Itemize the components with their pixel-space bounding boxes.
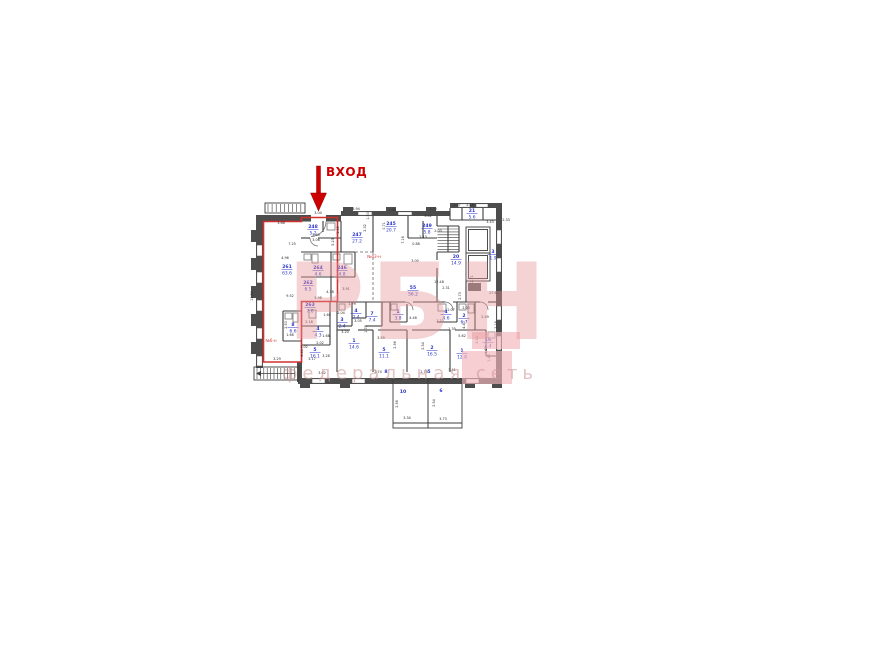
room-number: 261: [282, 264, 292, 270]
room-area: 7.6: [307, 309, 314, 315]
dimension-text: 3.20: [341, 330, 349, 334]
entrance-arrow-shaft: [317, 166, 321, 193]
dimension-text: 4.38: [326, 290, 334, 294]
dimension-text: 3.94: [352, 207, 360, 211]
dimension-text: 3.42: [424, 214, 432, 218]
room-area: 5.2: [310, 231, 317, 237]
room-area: 11.1: [379, 354, 389, 360]
room-number: 264: [313, 265, 323, 271]
dimension-text: 2.31: [442, 286, 450, 290]
room-number: 21: [469, 208, 475, 214]
dimension-text: 2.13: [419, 235, 427, 239]
room-number: 3: [340, 317, 343, 323]
dimension-text: 4.96: [281, 256, 289, 260]
room-number: 247: [352, 232, 362, 238]
dimension-text: 2.73: [458, 292, 462, 300]
room-area: 7.4: [369, 318, 376, 324]
room-area: 6.6: [290, 329, 297, 335]
dimension-text: 2.54: [421, 342, 425, 350]
dimension-text: 2.16: [494, 321, 498, 329]
room-number: 20: [453, 254, 459, 260]
window: [257, 356, 262, 366]
dimension-text: 2.08: [388, 208, 396, 212]
room-number: 2: [430, 345, 433, 351]
room-area: 4.6: [443, 316, 450, 322]
dimension-text: 3.68: [277, 221, 285, 225]
dimension-text: 7.16: [401, 236, 405, 244]
room-area: 16.1: [310, 354, 320, 360]
dimension-text: 2.28: [466, 203, 474, 207]
entrance-arrow-head: [311, 193, 327, 211]
dimension-text: 2.03: [434, 229, 442, 233]
dimension-text: 3.00: [411, 259, 419, 263]
loggia-number: 5: [427, 369, 430, 375]
window: [497, 230, 501, 244]
room-area: 14.9: [451, 261, 461, 267]
dimension-text: 1.68: [322, 334, 330, 338]
room-number: 249: [422, 223, 432, 229]
dimension-text: 3.59: [377, 336, 385, 340]
dimension-text: 3.62: [318, 371, 326, 375]
dimension-text: 3.34: [403, 416, 411, 420]
outline-rect: [466, 227, 490, 253]
dimension-text: 1.27: [453, 203, 461, 207]
window: [312, 379, 325, 383]
room-area: 27.2: [352, 239, 362, 245]
dimension-text: 3.43: [486, 220, 494, 224]
wall: [492, 384, 502, 388]
window: [257, 300, 262, 311]
room-area: 6.7: [461, 320, 468, 326]
dimension-text: 2.74: [374, 370, 382, 374]
unit-number-label: №6-н: [265, 338, 277, 343]
outline-rect: [265, 203, 305, 213]
fixture: [344, 254, 352, 264]
watermark-block: [472, 332, 520, 349]
dimension-text: 3.20: [429, 207, 437, 211]
entrance-arrow-layer: [311, 166, 327, 211]
dimension-text: 2.04: [337, 311, 345, 315]
window: [257, 272, 262, 283]
fixture: [339, 304, 345, 310]
dimension-text: 1.50: [366, 212, 370, 220]
dimension-text: 5.62: [458, 334, 466, 338]
dimension-text: 4.48: [409, 316, 417, 320]
dimension-text: 1.35: [448, 327, 456, 331]
room-area: 4.3: [315, 333, 322, 339]
outline-rect: [469, 230, 488, 251]
wall: [251, 342, 256, 354]
dimension-text: 2.02: [316, 341, 324, 345]
outline-rect: [469, 256, 488, 279]
wall: [251, 314, 256, 326]
room-area: 3.8: [395, 316, 402, 322]
dashed-layer: [355, 252, 373, 300]
room-number: 7: [370, 311, 373, 317]
fixture: [293, 313, 298, 322]
room-area: 16.5: [427, 352, 437, 358]
watermark-blocks-layer: [462, 332, 520, 384]
dimension-text: 2.50: [284, 321, 288, 329]
dimension-text: 13.80: [250, 291, 254, 301]
dimension-text: 3.06: [312, 238, 320, 242]
fixture: [304, 254, 311, 260]
dimension-text: 7.25: [288, 242, 296, 246]
room-number: 4: [354, 308, 357, 314]
room-area: 2.4: [339, 324, 346, 330]
fixture: [327, 223, 335, 230]
floor-plan-page: 3.043.683.603.061.457.254.969.5213.805.2…: [0, 0, 870, 652]
loggia-number: 6: [439, 388, 442, 394]
room-number: 246: [337, 265, 347, 271]
dimension-text: 1.45: [336, 226, 340, 234]
room-area: 5.6: [469, 215, 476, 221]
dimension-text: 2.56: [395, 400, 399, 408]
dimension-text: 9.52: [286, 294, 294, 298]
dimension-text: 1.78: [364, 325, 368, 333]
dimension-text: 3.91: [342, 287, 350, 291]
dimension-text: 4.40: [300, 349, 304, 357]
unit-number-label: №43-н: [367, 254, 381, 259]
room-number: 248: [308, 224, 318, 230]
dimension-text: 2.56: [393, 341, 397, 349]
window: [352, 379, 365, 383]
room-area: 14.6: [349, 345, 359, 351]
wall: [251, 230, 256, 242]
room-area: 4.6: [315, 272, 322, 278]
dimension-text: 2.07: [447, 308, 455, 312]
wall: [340, 384, 350, 388]
room-area: 20.7: [386, 228, 396, 234]
wall: [251, 258, 256, 270]
shaft-block: [468, 283, 481, 291]
window: [257, 245, 262, 256]
dimensions-layer: 3.043.683.603.061.457.254.969.5213.805.2…: [250, 203, 510, 421]
wall: [300, 384, 310, 388]
room-area: 56.2: [408, 292, 418, 298]
dimension-text: 2.49: [481, 315, 489, 319]
fixture: [285, 313, 292, 319]
dimension-text: 3.73: [439, 417, 447, 421]
dimension-text: 5.02: [300, 345, 308, 349]
dimension-text: 2.54: [432, 399, 436, 407]
room-number: 4: [444, 309, 447, 315]
room-area: 1.9: [490, 256, 497, 262]
wall: [465, 384, 475, 388]
wall: [256, 215, 263, 368]
dimension-text: 2.71: [470, 275, 474, 283]
room-number: 2: [462, 313, 465, 319]
room-number: 263: [305, 302, 315, 308]
dimension-text: 0.88: [412, 242, 420, 246]
dimension-text: 2.32: [363, 224, 367, 232]
room-area: 4.8: [339, 272, 346, 278]
window: [476, 204, 488, 207]
room-number: 262: [303, 280, 313, 286]
room-number: 8: [291, 322, 294, 328]
watermark-block: [462, 351, 512, 384]
window: [497, 306, 501, 320]
room-number: 4: [316, 326, 319, 332]
loggia-number: 10: [400, 389, 406, 395]
room-number: 1: [396, 309, 399, 315]
dimension-text: 27.61: [489, 291, 499, 295]
dimension-text: 1.79: [348, 302, 356, 306]
loggia-number: 8: [384, 369, 387, 375]
floor-plan-drawing: 3.043.683.603.061.457.254.969.5213.805.2…: [0, 0, 870, 652]
room-number: 3: [491, 249, 494, 255]
entrance-label: ВХОД: [326, 165, 367, 179]
room-number: 5: [382, 347, 385, 353]
window: [257, 328, 262, 339]
door-arc: [405, 302, 413, 310]
dimension-text: 1.60: [323, 313, 331, 317]
wall: [297, 362, 302, 382]
room-area: 63.6: [282, 271, 292, 277]
window: [497, 258, 501, 272]
room-number: 55: [410, 285, 416, 291]
room-number: 5: [313, 347, 316, 353]
room-area: 5.8: [424, 230, 431, 236]
window: [398, 212, 412, 215]
door-arc: [480, 302, 488, 310]
dimension-text: 3.04: [314, 211, 322, 215]
room-area: 2.4: [353, 315, 360, 321]
dimension-text: 3.98: [314, 296, 322, 300]
fixture: [333, 254, 340, 260]
fixture: [312, 254, 318, 263]
room-number: 245: [386, 221, 396, 227]
dimension-text: 2.33: [502, 218, 510, 222]
dimension-text: 5.23: [331, 238, 335, 246]
dimension-text: 3.29: [273, 357, 281, 361]
dimension-text: 3.41: [448, 368, 456, 372]
room-number: 1: [352, 338, 355, 344]
dimension-text: 2.18: [305, 320, 313, 324]
dimension-text: 3.28: [322, 354, 330, 358]
room-area: 6.5: [305, 287, 312, 293]
dimension-text: 2.03: [462, 306, 470, 310]
dimension-text: 12.48: [434, 280, 444, 284]
